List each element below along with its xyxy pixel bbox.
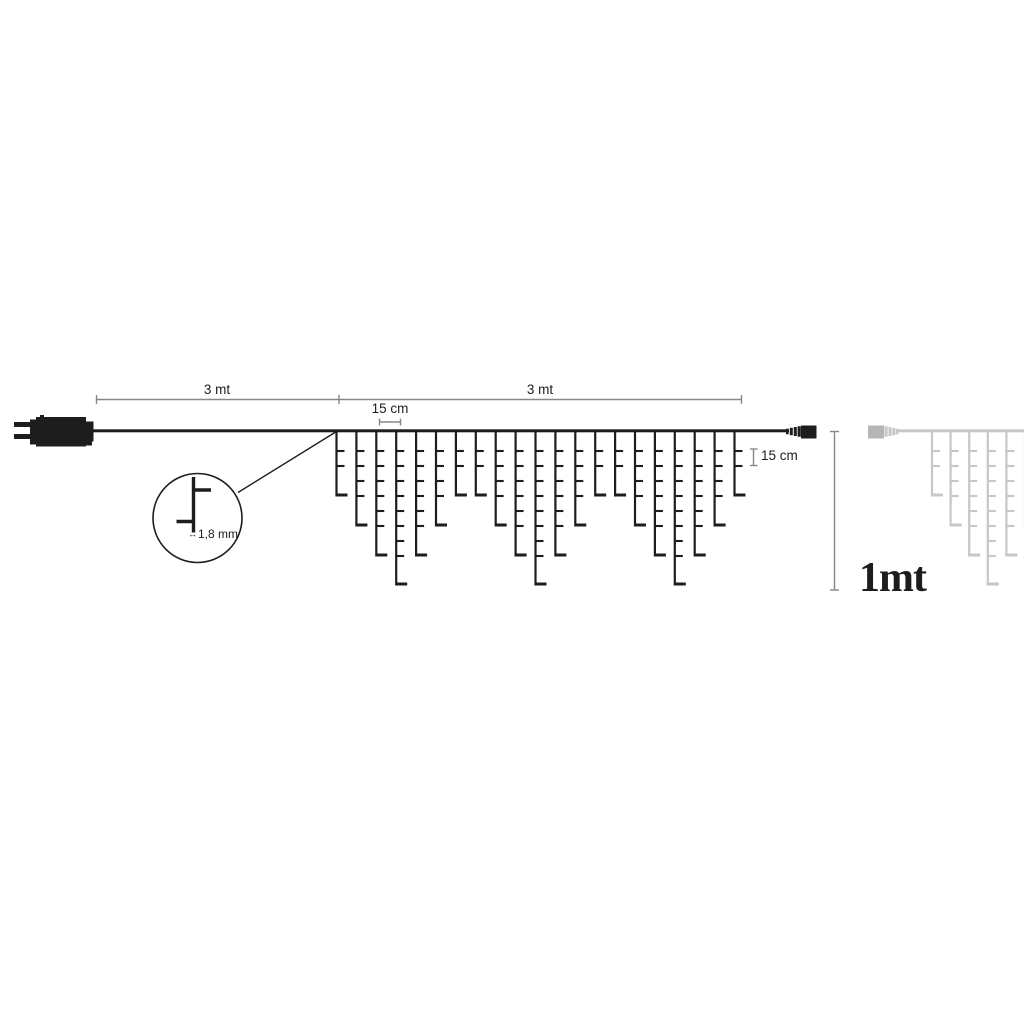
diagram-svg (0, 0, 1024, 1024)
magnifier-detail (153, 432, 337, 563)
end-connector (786, 426, 817, 439)
lead-length-label: 3 mt (204, 383, 230, 398)
diagram-canvas: 3 mt 3 mt 15 cm 15 cm ↔1,8 mm 1mt (0, 0, 1024, 1024)
led-spacing-dimension-line (750, 449, 758, 466)
wire-diameter-label: 1,8 mm (198, 527, 238, 541)
next-string-wire (898, 429, 1024, 432)
drop-height-dimension-line (830, 432, 839, 591)
drop-height-label: 1mt (859, 557, 926, 599)
drop-spacing-dimension-line (380, 419, 401, 426)
drop-spacing-label: 15 cm (372, 402, 409, 417)
next-string-curtain (932, 430, 1024, 586)
led-spacing-label: 15 cm (761, 449, 798, 464)
main-wire (93, 429, 789, 432)
lit-length-label: 3 mt (527, 383, 553, 398)
next-string-connector (868, 426, 898, 439)
wire-diameter-callout: ↔1,8 mm (188, 528, 238, 541)
width-arrow-icon: ↔ (188, 529, 197, 539)
magnifier-circle (153, 474, 242, 563)
magnifier-leader-line (238, 432, 337, 493)
power-plug (14, 415, 94, 447)
icicle-curtain (337, 430, 746, 586)
